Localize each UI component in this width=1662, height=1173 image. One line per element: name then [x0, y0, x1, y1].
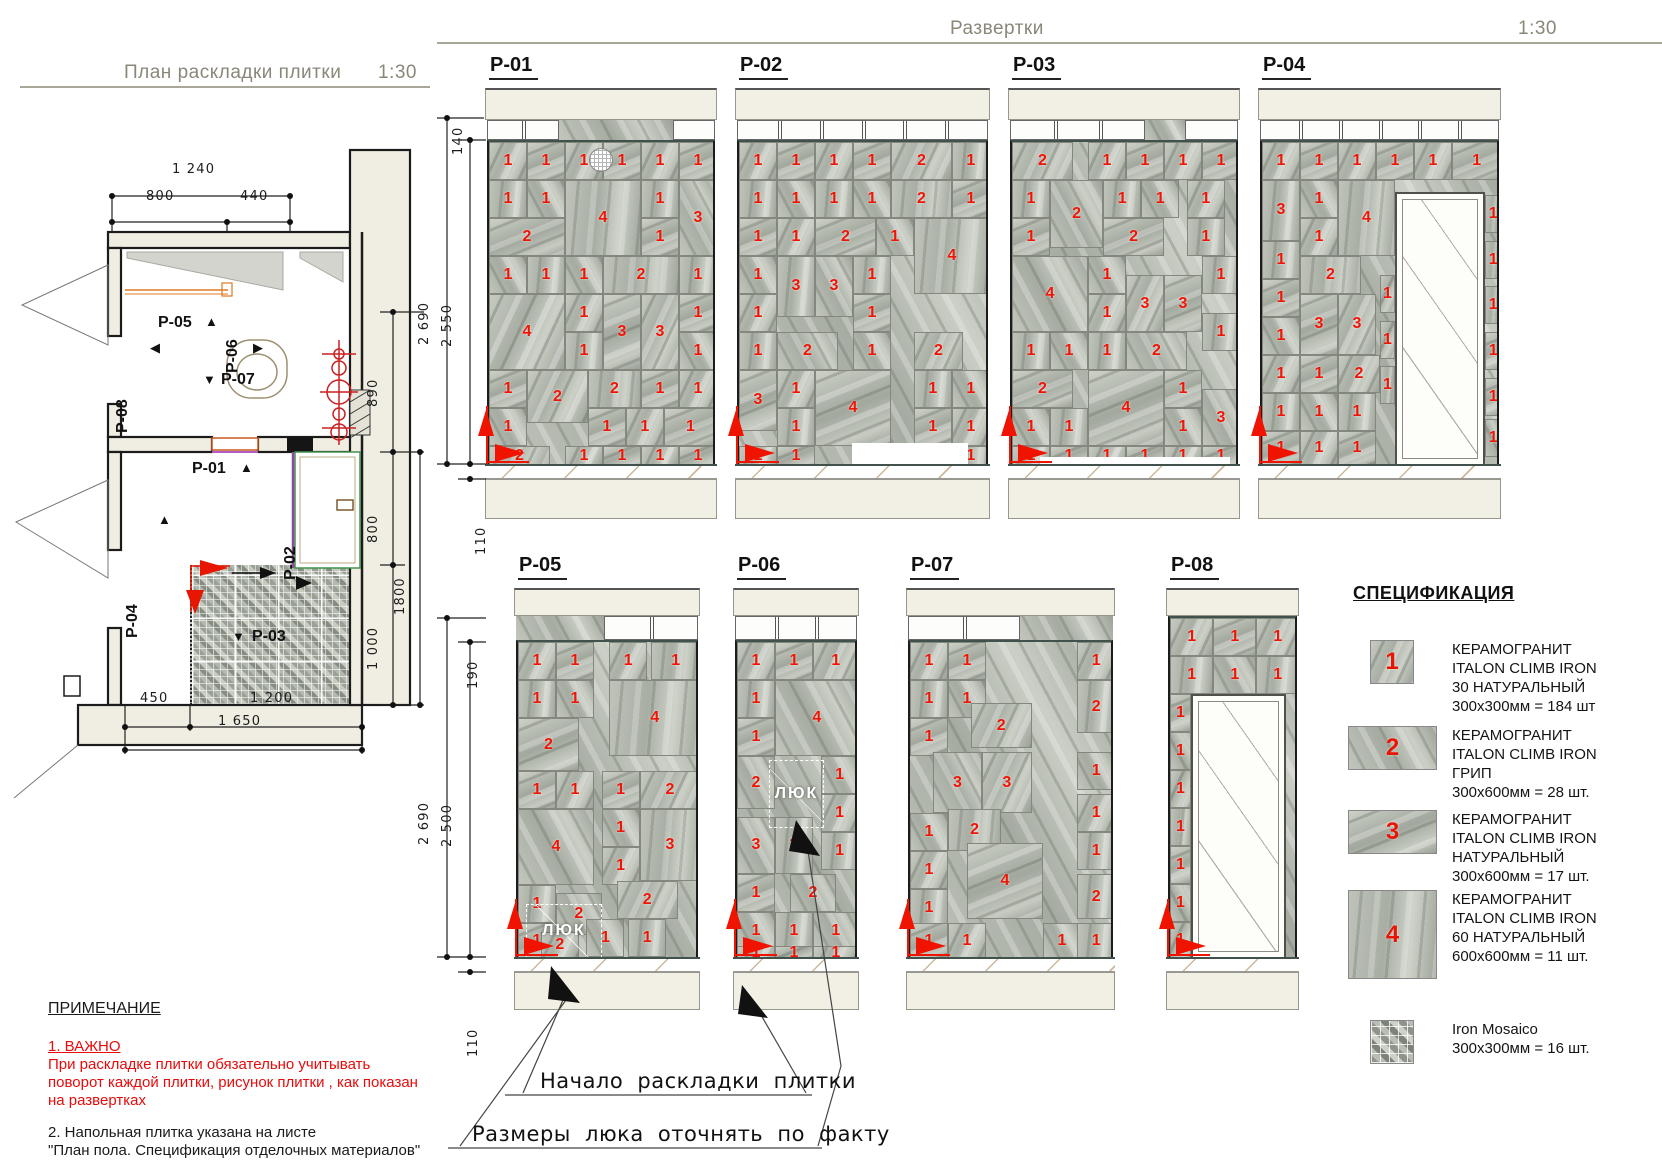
tile-number: 2	[997, 718, 1006, 734]
window-strip	[487, 120, 559, 140]
strip-tile-segment	[559, 120, 673, 140]
plan-view-marker: P-05	[158, 314, 192, 332]
tile-number: 1	[966, 191, 975, 207]
tile: 1	[952, 180, 988, 218]
tile: 1	[1164, 142, 1202, 180]
spec-item-text: КЕРАМОГРАНИТITALON CLIMB IRONНАТУРАЛЬНЫЙ…	[1452, 810, 1597, 886]
tile: 2	[1012, 142, 1073, 180]
tile-number: 1	[656, 381, 665, 397]
tile: 1	[565, 332, 603, 370]
tile: 1	[1202, 313, 1238, 351]
spec-item-line: ГРИП	[1452, 764, 1597, 783]
tile-number: 1	[752, 729, 761, 745]
tile-number: 1	[580, 305, 589, 321]
tile-number: 1	[1277, 290, 1286, 306]
tile: 2	[1077, 680, 1113, 733]
spec-item-line: 300х300мм = 184 шт	[1452, 697, 1597, 716]
door-swings	[14, 265, 108, 798]
tile: 2	[518, 718, 579, 771]
tile-number: 1	[656, 229, 665, 245]
plan-view-marker: ▼	[203, 372, 216, 387]
elevations-scale: 1:30	[1518, 18, 1557, 40]
spec-item-line: Iron Mosaico	[1452, 1020, 1590, 1039]
ceiling-band	[735, 88, 990, 120]
elevation-dimension: 2 550	[440, 304, 455, 347]
tile-number: 3	[752, 837, 761, 853]
tile-number: 1	[618, 448, 627, 464]
tile: 1	[739, 294, 777, 332]
tile-number: 1	[533, 653, 542, 669]
tile-number: 1	[1187, 667, 1196, 683]
plan-view-marker: P-07	[221, 371, 255, 389]
hatch-label: ЛЮК	[775, 785, 819, 803]
plan-dimension: 800	[366, 515, 381, 543]
tile-number: 2	[553, 389, 562, 405]
tile-number: 1	[1027, 191, 1036, 207]
floor-hatch-strip	[906, 957, 1115, 972]
vent-grille	[589, 148, 613, 172]
tile-number: 1	[1489, 297, 1498, 313]
tile-number: 1	[1092, 653, 1101, 669]
tile: 1	[1256, 618, 1297, 656]
tile-number: 1	[656, 191, 665, 207]
tile: 1	[641, 218, 679, 256]
callout-hatch-size: Размеры люка оточнять по факту	[472, 1122, 890, 1146]
notes-warning-line: поворот каждой плитки, рисунок плитки , …	[48, 1074, 420, 1092]
tile-number: 1	[790, 653, 799, 669]
tile-number: 1	[1353, 404, 1362, 420]
tile: 1	[948, 923, 986, 957]
tile-number: 1	[1176, 857, 1185, 873]
wall-pier	[287, 437, 313, 452]
tile: 4	[775, 680, 857, 756]
tile-number: 1	[1027, 419, 1036, 435]
elevation-label-P-07: P-07	[910, 554, 959, 580]
plan-view-marker: ▲	[205, 314, 218, 329]
tile-number: 1	[754, 305, 763, 321]
tile-number: 2	[1354, 366, 1363, 382]
tile-field-P-01: 111111114132111121413311112211111121111	[487, 140, 715, 464]
tile: 1	[910, 851, 948, 889]
plan-dimension: 800	[146, 189, 174, 204]
plan-door-sill	[212, 438, 258, 452]
tile: 1	[1414, 142, 1452, 180]
tile-number: 1	[868, 305, 877, 321]
tile: 1	[588, 408, 626, 446]
tile-number: 1	[1277, 404, 1286, 420]
floor-band	[1166, 972, 1299, 1010]
tile: 1	[641, 180, 679, 218]
tile: 1	[876, 218, 914, 256]
tile: 1	[1077, 752, 1113, 790]
tile: 1	[1485, 241, 1499, 279]
tile: 1	[679, 142, 715, 180]
tile: 4	[967, 843, 1043, 919]
tile-number: 1	[580, 343, 589, 359]
tile: 1	[853, 180, 891, 218]
tile-number: 1	[640, 419, 649, 435]
layout-start-arrow-right	[524, 937, 554, 955]
tile-number: 1	[571, 782, 580, 798]
ceiling-band	[1166, 588, 1299, 616]
tile: 2	[640, 771, 698, 809]
tile-number: 3	[754, 392, 763, 408]
elevation-label-P-03: P-03	[1012, 54, 1061, 80]
window-divider	[903, 121, 907, 139]
tile: 1	[739, 332, 777, 370]
tile-number: 2	[841, 229, 850, 245]
floor-hatch-strip	[1166, 957, 1299, 972]
floor-hatch-strip	[1008, 464, 1240, 479]
notes-warning-line: на развертках	[48, 1092, 420, 1110]
tile: 1	[821, 832, 857, 870]
tile-number: 4	[523, 324, 532, 340]
tile-number: 2	[1092, 699, 1101, 715]
spec-item-line: 300х600мм = 28 шт.	[1452, 783, 1597, 802]
tile-number: 1	[831, 923, 840, 939]
tile-number: 1	[533, 782, 542, 798]
tile-number: 1	[835, 767, 844, 783]
layout-start-arrow-up	[1251, 410, 1267, 436]
tile-number: 1	[1353, 440, 1362, 456]
layout-start-arrow-right	[1268, 444, 1298, 462]
tile-number: 1	[754, 229, 763, 245]
tile-number: 1	[1065, 419, 1074, 435]
tile: 1	[1164, 408, 1202, 446]
plan-view-marker: ▼	[232, 629, 245, 644]
tile-number: 2	[803, 343, 812, 359]
tile-number: 2	[1038, 381, 1047, 397]
tile: 1	[1088, 294, 1126, 332]
tile: 4	[565, 180, 641, 256]
plan-view-marker: P-03	[252, 628, 286, 646]
tile: 4	[914, 218, 988, 294]
spec-item-line: КЕРАМОГРАНИТ	[1452, 810, 1597, 829]
tile: 3	[1338, 294, 1376, 355]
tile: 1	[737, 874, 775, 912]
layout-start-arrow-right	[1018, 444, 1048, 462]
tile-field-P-08: 1111111111111	[1168, 616, 1297, 957]
tile-number: 1	[542, 191, 551, 207]
tile-number: 1	[1103, 267, 1112, 283]
tile: 1	[1164, 370, 1202, 408]
tile-number: 1	[752, 653, 761, 669]
tile: 1	[628, 919, 666, 957]
tile: 4	[815, 370, 891, 446]
tile-number: 1	[694, 305, 703, 321]
tile: 1	[914, 370, 952, 408]
tile-number: 2	[917, 153, 926, 169]
tile: 1	[626, 408, 664, 446]
tile-number: 1	[1429, 153, 1438, 169]
tile-number: 1	[1277, 252, 1286, 268]
tile: 1	[565, 294, 603, 332]
tile: 1	[777, 142, 815, 180]
tile-number: 1	[542, 267, 551, 283]
tile: 1	[1380, 366, 1395, 404]
floor-hatch-strip	[1258, 464, 1501, 479]
spec-item-line: ITALON CLIMB IRON	[1452, 745, 1597, 764]
tile-number: 1	[792, 381, 801, 397]
tile-number: 1	[1092, 933, 1101, 949]
tile-number: 3	[1217, 410, 1226, 426]
tile-number: 2	[1129, 229, 1138, 245]
tile: 2	[815, 218, 876, 256]
tile: 1	[1088, 142, 1126, 180]
tile-number: 1	[1141, 153, 1150, 169]
tile: 1	[1170, 770, 1191, 808]
tile: 1	[777, 408, 815, 446]
elevation-label-P-04: P-04	[1262, 54, 1311, 80]
tile: 1	[489, 142, 527, 180]
tile: 1	[1012, 408, 1050, 446]
window-divider	[775, 617, 779, 639]
tile-number: 1	[1230, 667, 1239, 683]
door-leaf	[1198, 701, 1279, 952]
strip-tile-segment	[516, 616, 604, 640]
tile-number: 1	[792, 229, 801, 245]
tile-number: 2	[809, 885, 818, 901]
tile-number: 1	[790, 945, 799, 957]
spec-item-line: 60 НАТУРАЛЬНЫЙ	[1452, 928, 1597, 947]
tile: 1	[777, 446, 815, 464]
tile: 2	[1338, 355, 1380, 393]
tile-number: 1	[1217, 267, 1226, 283]
tile: 1	[603, 446, 641, 464]
tile-number: 2	[610, 381, 619, 397]
tile: 4	[518, 809, 594, 885]
window-divider	[1418, 121, 1422, 139]
tile: 1	[1300, 431, 1338, 464]
tile-number: 1	[754, 343, 763, 359]
tile-number: 3	[1277, 202, 1286, 218]
tile: 1	[664, 408, 715, 446]
tile-number: 1	[1277, 366, 1286, 382]
tile-number: 1	[1176, 705, 1185, 721]
tile-number: 1	[868, 191, 877, 207]
tile-number: 4	[1046, 286, 1055, 302]
tile-number: 1	[656, 448, 665, 464]
tile: 2	[527, 370, 588, 423]
plan-title-rule	[20, 86, 430, 88]
tile-number: 1	[963, 653, 972, 669]
tile: 1	[1088, 332, 1126, 370]
spec-item-line: ITALON CLIMB IRON	[1452, 829, 1597, 848]
tile: 1	[1262, 241, 1300, 279]
tile-number: 1	[1230, 629, 1239, 645]
window-strip	[1260, 120, 1499, 140]
tile: 1	[853, 294, 891, 332]
tile-number: 4	[650, 710, 659, 726]
window-strip	[1010, 120, 1145, 140]
tile: 1	[1262, 142, 1300, 180]
tile: 3	[641, 294, 679, 370]
tile: 1	[1262, 279, 1300, 317]
tile-number: 3	[666, 837, 675, 853]
elevation-label-P-05: P-05	[518, 554, 567, 580]
layout-start-arrow-up	[726, 903, 742, 929]
tile: 1	[1043, 923, 1081, 957]
plan-view-marker: ◀	[150, 340, 160, 356]
plan-view-marker: ▶	[253, 340, 263, 356]
tile: 1	[556, 680, 594, 718]
spec-swatch-number: 1	[1385, 648, 1398, 676]
tile-number: 1	[1489, 206, 1498, 222]
plan-title: План раскладки плитки	[124, 62, 341, 84]
tile-number: 3	[953, 775, 962, 791]
tile: 1	[489, 256, 527, 294]
tile: 1	[1170, 846, 1191, 884]
ceiling-band	[906, 588, 1115, 616]
window-strip	[737, 120, 988, 140]
plan-dimension: 440	[240, 189, 268, 204]
tile-number: 1	[1187, 629, 1196, 645]
tile-number: 1	[1176, 895, 1185, 911]
tile-number: 1	[792, 419, 801, 435]
tile-number: 2	[643, 892, 652, 908]
plan-dimension: 1 200	[250, 691, 293, 706]
tile: 1	[853, 332, 891, 370]
tile: 1	[1213, 656, 1256, 694]
tile-number: 1	[1058, 933, 1067, 949]
tile: 1	[1213, 618, 1256, 656]
tile-number: 2	[1038, 153, 1047, 169]
spec-swatch-number: 4	[1386, 921, 1399, 949]
tile-field-P-02: 11112111112111214133111121231411111111	[737, 140, 988, 464]
elevation-label-P-02: P-02	[739, 54, 788, 80]
tile-number: 1	[571, 653, 580, 669]
spec-item-line: НАТУРАЛЬНЫЙ	[1452, 848, 1597, 867]
floor-hatch-strip	[514, 957, 700, 972]
tile-number: 3	[792, 278, 801, 294]
tile-number: 1	[966, 381, 975, 397]
floor-band	[735, 479, 990, 519]
tile: 1	[1202, 142, 1238, 180]
plan-shelves	[127, 252, 343, 290]
window-strip	[908, 616, 1020, 640]
tile: 1	[1170, 656, 1213, 694]
tile-number: 1	[925, 824, 934, 840]
specification-title: СПЕЦИФИКАЦИЯ	[1353, 583, 1514, 604]
spec-swatch-mosaic	[1370, 1020, 1414, 1064]
tile-number: 1	[1176, 743, 1185, 759]
elevation-dimension: 140	[451, 127, 466, 155]
tile-number: 1	[504, 153, 513, 169]
tile: 1	[679, 446, 715, 464]
tile: 1	[853, 256, 891, 294]
tile: 1	[739, 142, 777, 180]
tile: 1	[952, 370, 988, 408]
tile-number: 1	[754, 267, 763, 283]
tile-number: 1	[1273, 629, 1282, 645]
tile: 1	[1187, 180, 1225, 218]
spec-item-text: КЕРАМОГРАНИТITALON CLIMB IRON30 НАТУРАЛЬ…	[1452, 640, 1597, 716]
tile-number: 1	[580, 267, 589, 283]
tile: 1	[556, 771, 594, 809]
spec-item-line: ITALON CLIMB IRON	[1452, 909, 1597, 928]
layout-start-arrow-right	[743, 937, 773, 955]
ceiling-band	[1008, 88, 1240, 120]
tile-number: 1	[616, 782, 625, 798]
tile-number: 2	[1152, 343, 1161, 359]
tile: 1	[602, 809, 640, 847]
spec-item-line: КЕРАМОГРАНИТ	[1452, 890, 1597, 909]
tile-number: 1	[1118, 191, 1127, 207]
tile: 1	[1262, 317, 1300, 355]
tile: 2	[1300, 256, 1361, 294]
window-strip	[673, 120, 715, 140]
tile-number: 1	[1489, 389, 1498, 405]
tile: 1	[641, 142, 679, 180]
tile: 1	[1187, 218, 1225, 256]
tile: 1	[518, 771, 556, 809]
tile: 1	[1262, 393, 1300, 431]
tile-number: 1	[624, 653, 633, 669]
floor-band	[1008, 479, 1240, 519]
tile: 2	[489, 218, 565, 256]
spec-item-line: КЕРАМОГРАНИТ	[1452, 726, 1597, 745]
tile-number: 3	[1179, 296, 1188, 312]
window-divider	[815, 617, 819, 639]
layout-start-arrow-up	[478, 410, 494, 436]
tile-number: 4	[1001, 873, 1010, 889]
tile-number: 1	[694, 267, 703, 283]
spec-item-line: 600х600мм = 11 шт.	[1452, 947, 1597, 966]
tile: 1	[910, 718, 948, 756]
layout-start-arrow-up	[1001, 410, 1017, 436]
tile-number: 1	[925, 653, 934, 669]
tile-number: 4	[849, 400, 858, 416]
tile-number: 1	[1179, 381, 1188, 397]
tile-number: 1	[1315, 191, 1324, 207]
tile-number: 1	[686, 419, 695, 435]
tile: 1	[813, 946, 857, 957]
tile: 1	[1338, 393, 1376, 431]
layout-start-arrow-right	[916, 937, 946, 955]
tile-number: 1	[1383, 286, 1392, 302]
tile: 1	[1485, 286, 1499, 324]
tile: 1	[1170, 732, 1191, 770]
plan-view-marker: P-02	[282, 546, 300, 580]
tile-number: 1	[754, 191, 763, 207]
notes-title: ПРИМЕЧАНИЕ	[48, 1000, 420, 1018]
tile-number: 3	[830, 278, 839, 294]
tile-number: 1	[504, 381, 513, 397]
tile: 3	[603, 294, 641, 370]
window-divider	[1379, 121, 1383, 139]
ceiling-band	[485, 88, 717, 120]
layout-start-arrow-right	[745, 444, 775, 462]
tile-number: 1	[694, 153, 703, 169]
tile: 2	[777, 332, 838, 370]
tile: 1	[1452, 142, 1499, 180]
floor-band	[906, 972, 1115, 1010]
tile: 1	[489, 370, 527, 408]
tile-number: 1	[1065, 343, 1074, 359]
tile: 4	[1088, 370, 1164, 446]
tile: 2	[891, 180, 952, 218]
tile-number: 2	[934, 343, 943, 359]
tile: 1	[1300, 218, 1338, 256]
tile-number: 1	[1103, 305, 1112, 321]
tile-number: 1	[752, 885, 761, 901]
tile: 2	[617, 881, 678, 919]
tile: 1	[777, 218, 815, 256]
tile-number: 1	[602, 419, 611, 435]
floor-hatch-strip	[733, 957, 859, 972]
wall-notch	[852, 443, 968, 464]
tile: 2	[1012, 370, 1073, 408]
